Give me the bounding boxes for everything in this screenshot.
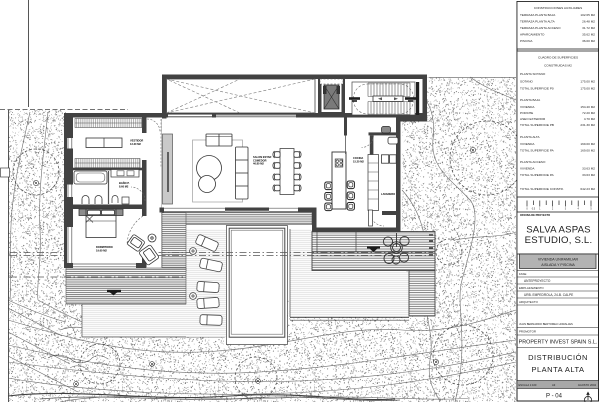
svg-text:PISCINA: PISCINA [520,39,533,43]
svg-text:VIVIENDA UNIFAMILIAR: VIVIENDA UNIFAMILIAR [538,258,579,262]
svg-text:SOTANO: SOTANO [520,80,533,84]
svg-text:231.30 M2: 231.30 M2 [580,123,595,127]
svg-text:TOTAL SUPERFICIE PA: TOTAL SUPERFICIE PA [520,149,555,153]
svg-text:VIVIENDA: VIVIENDA [520,105,535,109]
svg-text:72.20 M2: 72.20 M2 [582,111,595,115]
svg-text:TOTAL SUPERFICIE P0: TOTAL SUPERFICIE P0 [520,87,554,91]
svg-text:EMPLAZAMIENTO: EMPLAZAMIENTO [519,286,544,290]
svg-text:169.00 M2: 169.00 M2 [580,142,595,146]
svg-text:PLANTA ACCESO: PLANTA ACCESO [520,160,546,164]
svg-text:8.60 M2: 8.60 M2 [119,184,129,188]
svg-text:TOTAL SUPERFICIE CONSTR.: TOTAL SUPERFICIE CONSTR. [520,187,564,191]
svg-text:19.60 M2: 19.60 M2 [96,248,107,252]
svg-text:FASE: FASE [519,272,526,276]
svg-text:URB. EMPEDROLA, 24-B. CALPE: URB. EMPEDROLA, 24-B. CALPE [524,293,573,297]
svg-text:LAVADERO: LAVADERO [381,192,395,196]
svg-text:PLANTA ALTA: PLANTA ALTA [520,135,541,139]
svg-text:CUADRO DE SUPERFICIES: CUADRO DE SUPERFICIES [538,56,578,60]
svg-text:175.00 M2: 175.00 M2 [580,80,595,84]
svg-text:15.20 M2: 15.20 M2 [353,159,364,163]
svg-text:ESCALA 1:100: ESCALA 1:100 [519,383,537,387]
svg-text:4.70 M2: 4.70 M2 [584,117,595,121]
svg-text:ESTUDIO, S.L.: ESTUDIO, S.L. [525,235,593,246]
svg-text:VIVIENDA: VIVIENDA [520,142,535,146]
svg-text:31.72 M2: 31.72 M2 [582,26,595,30]
svg-text:JUAN BERNARDO BERTOMEU HORALJE: JUAN BERNARDO BERTOMEU HORALJES [519,322,573,326]
svg-text:TERRAZA PLANTA BAJA: TERRAZA PLANTA BAJA [520,13,556,17]
svg-text:PLANTA BAJA: PLANTA BAJA [520,98,541,102]
svg-text:AISLADA Y PISCINA: AISLADA Y PISCINA [541,263,575,267]
svg-text:12.30 M2: 12.30 M2 [130,142,141,146]
svg-text:VIVIENDA: VIVIENDA [520,167,535,171]
svg-text:CONSTRUIDAS M2: CONSTRUIDAS M2 [544,64,572,68]
svg-text:APARCAMIENTO: APARCAMIENTO [520,33,545,37]
svg-text:PROMOTOR: PROMOTOR [519,330,536,334]
svg-text:P - 04: P - 04 [546,394,563,400]
svg-text:TERRAZA PLANTA ACCESO: TERRAZA PLANTA ACCESO [520,26,561,30]
svg-text:154.40 M2: 154.40 M2 [580,105,595,109]
svg-text:PORCHE: PORCHE [520,111,533,115]
svg-text:102.65 M2: 102.65 M2 [580,13,595,17]
svg-text:ANTEPROYECTO: ANTEPROYECTO [524,279,551,283]
svg-text:TOTAL SUPERFICIE PA: TOTAL SUPERFICIE PA [520,173,555,177]
svg-text:46.80 M2: 46.80 M2 [253,162,264,166]
svg-text:ARQUITECTO: ARQUITECTO [519,300,539,304]
svg-text:DISTRIBUCIÓN: DISTRIBUCIÓN [528,353,588,362]
svg-text:PLANTA ALTA: PLANTA ALTA [531,365,584,374]
svg-text:26.48 M2: 26.48 M2 [582,20,595,24]
svg-text:A3: A3 [552,383,556,387]
svg-text:36.00 M2: 36.00 M2 [582,39,595,43]
svg-text:33.63 M2: 33.63 M2 [582,167,595,171]
svg-text:CONSTRUCCIONES AUXILIARES: CONSTRUCCIONES AUXILIARES [534,6,582,10]
svg-text:35.62 M2: 35.62 M2 [582,33,595,37]
svg-text:TERRAZA PLANTA ALTA: TERRAZA PLANTA ALTA [520,20,556,24]
svg-text:642.23 M2: 642.23 M2 [580,187,595,191]
svg-text:ASEO EXTERIOR: ASEO EXTERIOR [520,117,546,121]
svg-text:TOTAL SUPERFICIE PB: TOTAL SUPERFICIE PB [520,123,554,127]
svg-text:169.00 M2: 169.00 M2 [580,149,595,153]
svg-text:AGOSTO 2004: AGOSTO 2004 [578,383,597,387]
svg-text:33.63 M2: 33.63 M2 [582,173,595,177]
svg-text:175.00 M2: 175.00 M2 [580,87,595,91]
svg-text:PLANTA SOTANO: PLANTA SOTANO [520,72,546,76]
svg-text:OFICINA DE PROYECTO: OFICINA DE PROYECTO [520,213,550,217]
svg-text:PROPERTY INVEST SPAIN S.L.: PROPERTY INVEST SPAIN S.L. [519,340,598,346]
